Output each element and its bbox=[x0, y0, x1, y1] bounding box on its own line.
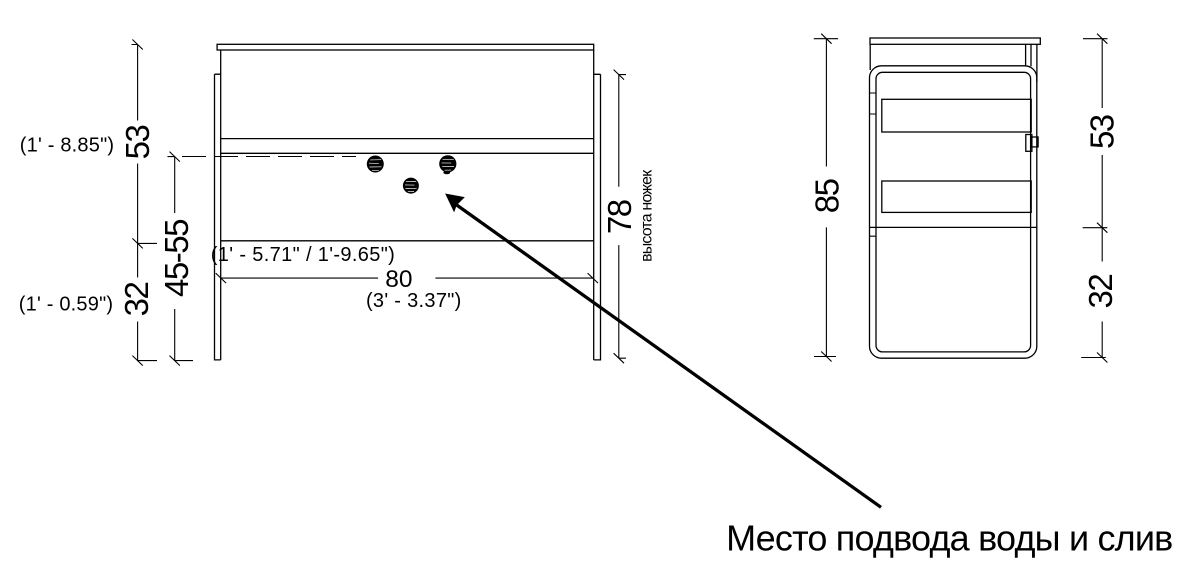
svg-text:53: 53 bbox=[119, 126, 156, 160]
svg-text:78: 78 bbox=[601, 200, 638, 234]
svg-text:80: 80 bbox=[385, 266, 412, 293]
svg-text:высота ножек: высота ножек bbox=[639, 169, 656, 262]
svg-text:53: 53 bbox=[1083, 115, 1120, 149]
svg-text:(3' - 3.37"): (3' - 3.37") bbox=[366, 290, 462, 312]
svg-text:85: 85 bbox=[808, 179, 845, 213]
svg-text:(1' - 5.71" / 1'-9.65"): (1' - 5.71" / 1'-9.65") bbox=[211, 244, 395, 266]
svg-text:(1' - 0.59"): (1' - 0.59") bbox=[19, 294, 113, 316]
svg-text:32: 32 bbox=[1082, 275, 1119, 309]
svg-text:Место подвода воды и слив: Место подвода воды и слив bbox=[726, 518, 1172, 559]
svg-text:(1' - 8.85"): (1' - 8.85") bbox=[20, 134, 114, 156]
svg-text:32: 32 bbox=[118, 283, 155, 317]
svg-text:45-55: 45-55 bbox=[158, 220, 195, 297]
